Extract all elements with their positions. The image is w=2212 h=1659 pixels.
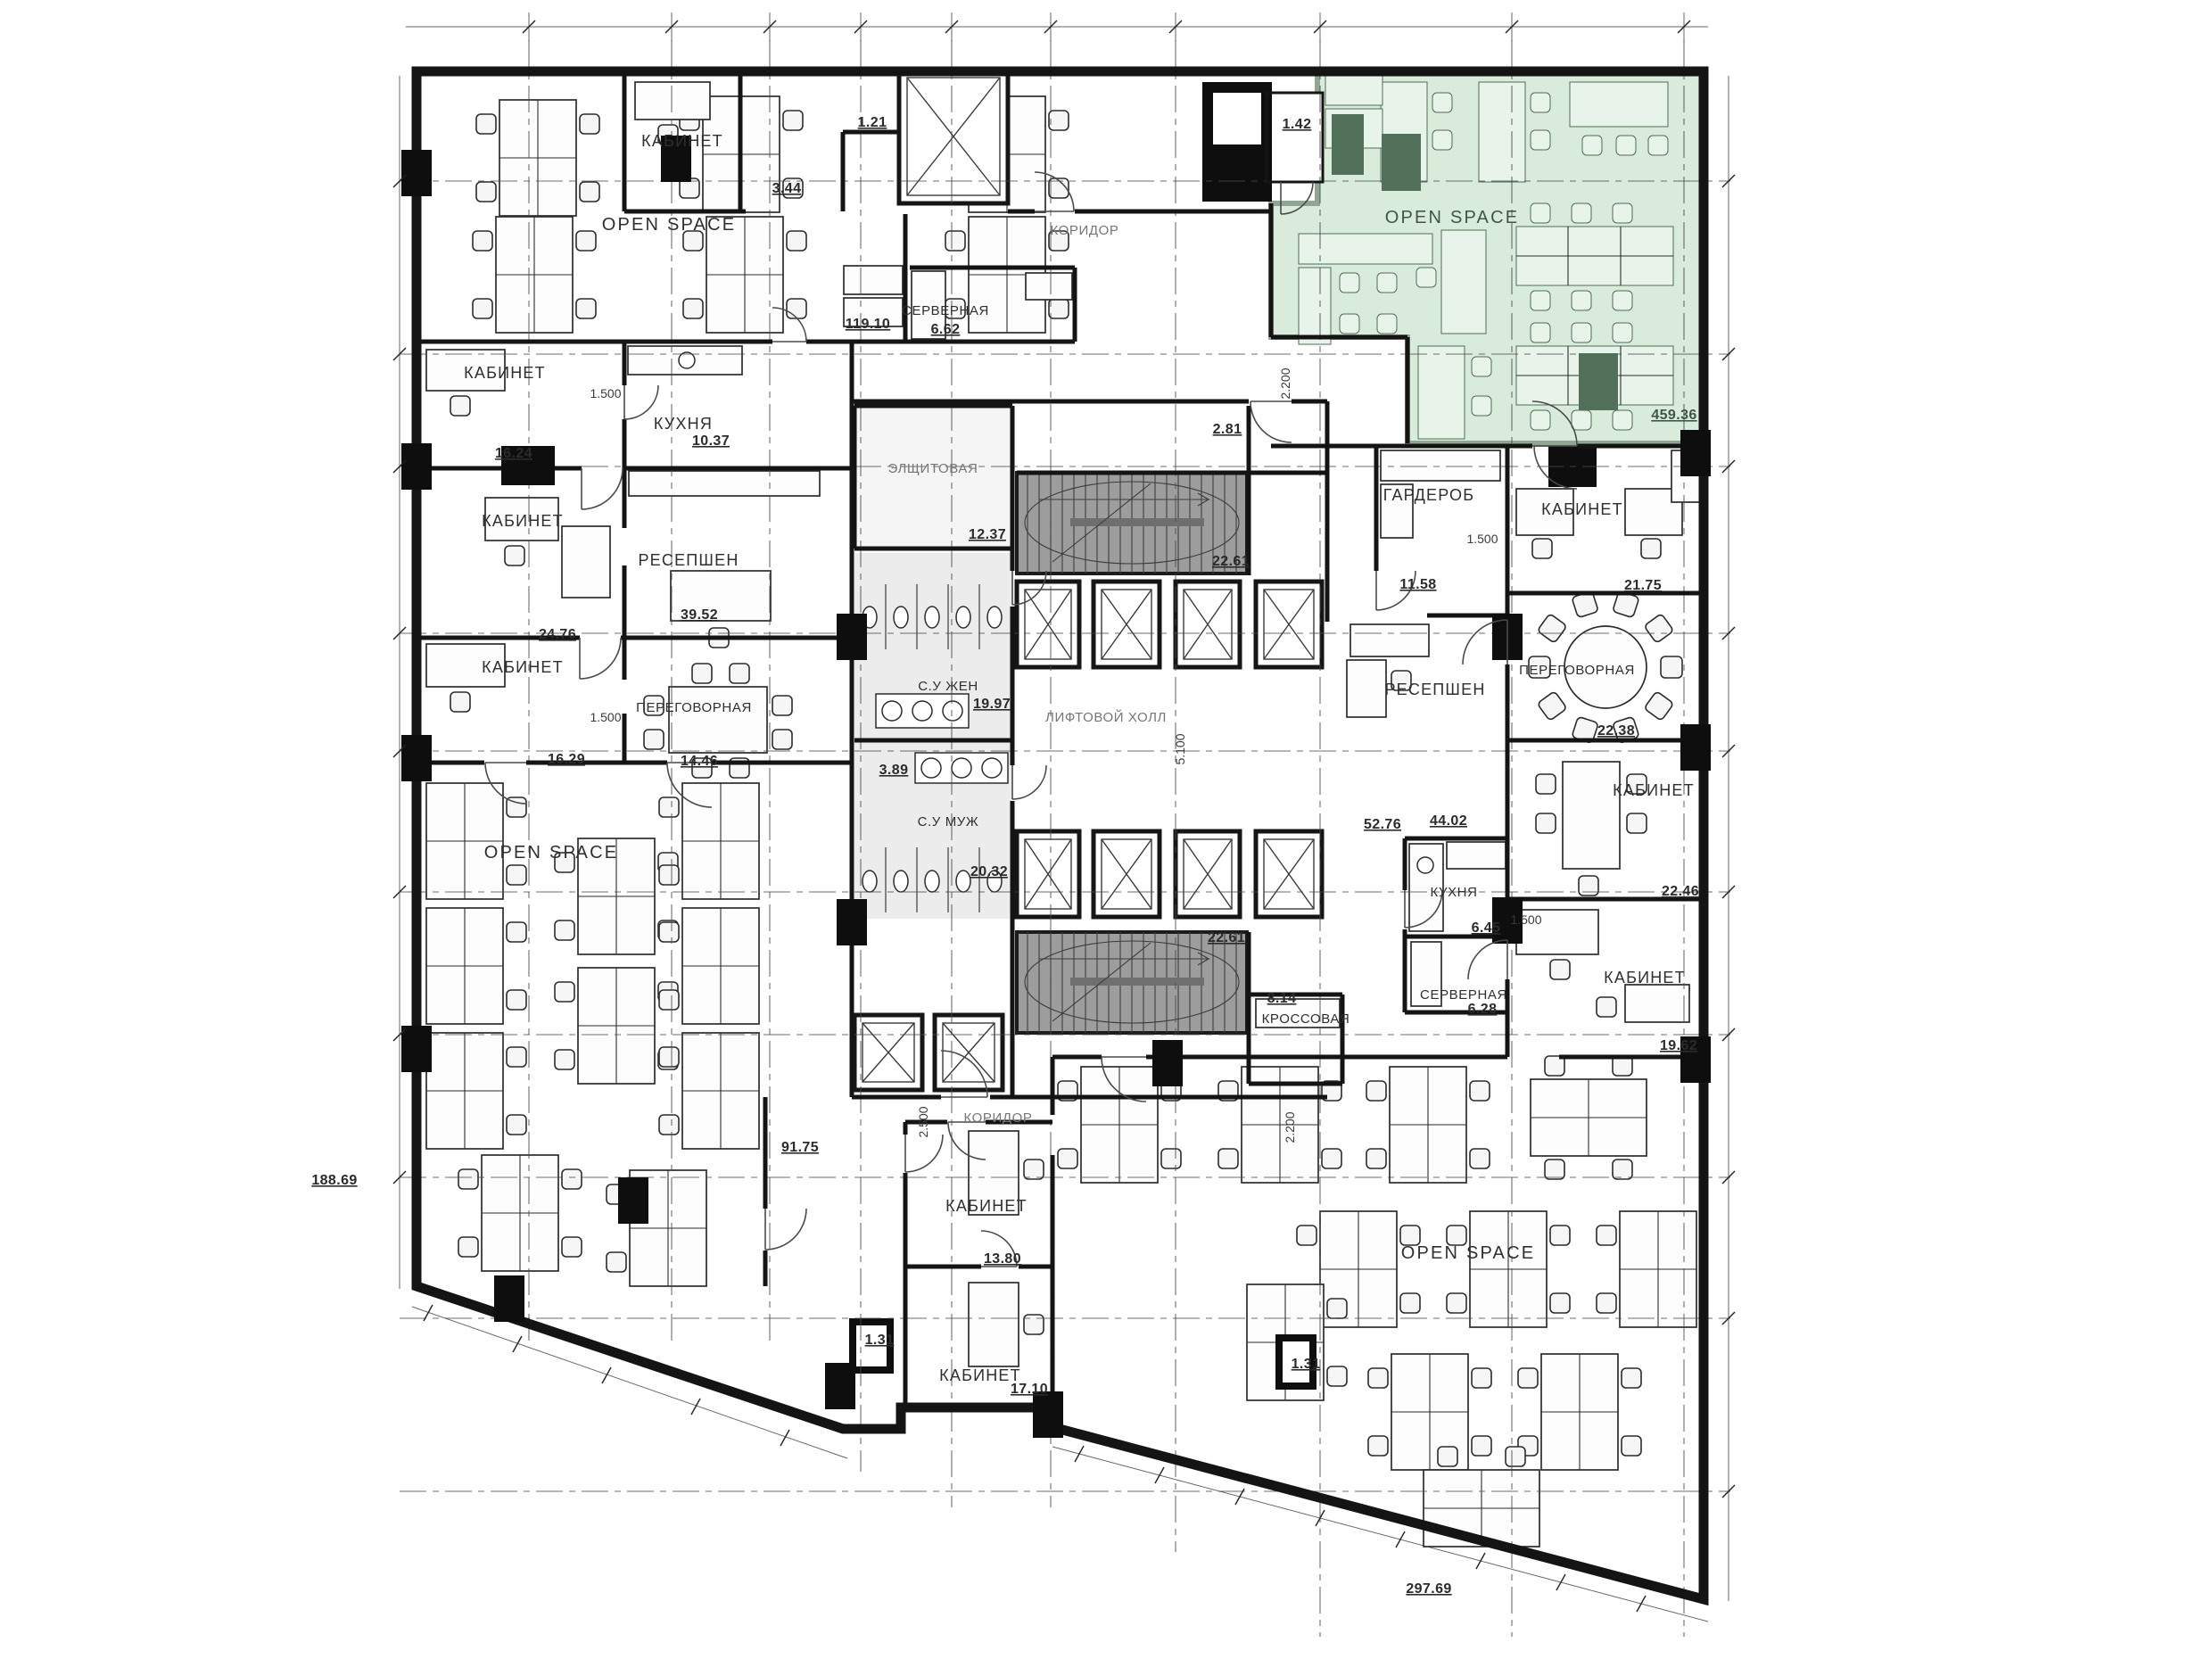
floor-plan-drawing: OPEN SPACE 119.10 СЕРВЕРНАЯ 6.62 КАБИНЕТ… [0, 0, 2212, 1659]
room-area-krossovaya: 8.14 [1267, 991, 1297, 1006]
room-label-kabinet-top: КАБИНЕТ [641, 132, 723, 150]
room-area-open-space-green: 459.36 [1651, 408, 1696, 423]
room-label-kabinet-r1: КАБИНЕТ [1541, 500, 1623, 518]
dim-2500: 2.500 [916, 1106, 930, 1137]
area-stairs-bottom: 22.61 [1208, 930, 1245, 945]
area-3-89: 3.89 [879, 763, 909, 778]
room-area-reception-right: 44.02 [1430, 813, 1467, 829]
room-label-corridor-top: КОРИДОР [1050, 223, 1118, 238]
room-label-garderob: ГАРДЕРОБ [1383, 486, 1475, 504]
room-area-reception-left: 39.52 [681, 607, 718, 623]
room-label-open-space-green: OPEN SPACE [1385, 208, 1520, 227]
room-label-server-top: СЕРВЕРНАЯ [902, 303, 989, 318]
room-area-kabinet-r1: 21.75 [1624, 578, 1662, 593]
room-area-elshitovaya: 12.37 [969, 527, 1006, 542]
room-area-kitchen-right: 6.45 [1472, 920, 1501, 936]
room-label-kabinet-l2: КАБИНЕТ [482, 512, 564, 530]
room-label-peregovornaya-right: ПЕРЕГОВОРНАЯ [1519, 663, 1635, 678]
room-area-server-top: 6.62 [931, 322, 961, 337]
room-area-kabinet-r2: 22.46 [1662, 884, 1699, 899]
area-1-31-right: 1.31 [1292, 1357, 1321, 1372]
room-area-wc-men: 20.32 [970, 864, 1008, 879]
room-label-open-space-left: OPEN SPACE [484, 843, 619, 863]
room-area-peregovornaya-right: 22.38 [1597, 723, 1635, 739]
area-1-31-left: 1.31 [865, 1333, 895, 1348]
dim-2200-b: 2.200 [1283, 1111, 1297, 1143]
room-area-kitchen-left: 10.37 [692, 433, 730, 449]
area-1-42: 1.42 [1283, 117, 1312, 132]
area-1-21: 1.21 [858, 115, 887, 130]
room-label-kabinet-b2: КАБИНЕТ [939, 1366, 1021, 1384]
room-label-corridor-bottom: КОРИДОР [963, 1110, 1032, 1126]
room-area-wc-women: 19.97 [973, 697, 1011, 712]
dim-1500-b: 1.500 [590, 710, 621, 724]
dim-5100: 5.100 [1173, 733, 1187, 764]
room-area-kabinet-l3: 16.29 [548, 752, 585, 767]
room-label-wc-men: С.У МУЖ [918, 814, 979, 829]
area-91-75: 91.75 [781, 1140, 819, 1155]
room-label-peregovornaya-left: ПЕРЕГОВОРНАЯ [636, 700, 752, 715]
room-label-krossovaya: КРОССОВАЯ [1262, 1011, 1350, 1027]
room-label-kitchen-right: КУХНЯ [1430, 885, 1477, 900]
area-stairs-top: 22.61 [1212, 554, 1250, 569]
room-area-open-space-left: 188.69 [311, 1173, 357, 1188]
room-area-open-space-top-left: 119.10 [846, 317, 890, 332]
room-label-elshitovaya: ЭЛЩИТОВАЯ [888, 461, 978, 476]
room-label-wc-women: С.У ЖЕН [918, 679, 978, 694]
room-area-kabinet-r3: 19.62 [1660, 1038, 1697, 1053]
room-label-kabinet-r2: КАБИНЕТ [1613, 781, 1695, 799]
room-area-open-space-bottom: 297.69 [1406, 1581, 1451, 1597]
dim-1500-a: 1.500 [590, 386, 621, 400]
area-2-81: 2.81 [1213, 422, 1242, 437]
room-label-reception-right: РЕСЕПШЕН [1384, 681, 1485, 698]
room-fills [854, 406, 1012, 919]
room-label-lift-hall: ЛИФТОВОЙ ХОЛЛ [1045, 709, 1167, 725]
dim-1500-d: 1.500 [1510, 912, 1541, 927]
room-label-kabinet-l1: КАБИНЕТ [464, 364, 546, 382]
room-label-kabinet-r3: КАБИНЕТ [1604, 969, 1686, 986]
room-label-kitchen-left: КУХНЯ [654, 415, 713, 433]
room-label-kabinet-l3: КАБИНЕТ [482, 658, 564, 676]
room-label-open-space-bottom: OPEN SPACE [1401, 1243, 1536, 1263]
dim-2200-a: 2.200 [1278, 367, 1292, 399]
room-area-peregovornaya-left: 14.46 [681, 754, 718, 769]
room-label-reception-left: РЕСЕПШЕН [638, 551, 739, 569]
room-area-kabinet-b1: 13.80 [984, 1251, 1021, 1267]
room-label-open-space-top-left: OPEN SPACE [602, 215, 737, 235]
room-area-kabinet-l1: 16.24 [495, 446, 532, 461]
room-area-server-right: 6.28 [1468, 1002, 1498, 1017]
area-52-76: 52.76 [1364, 817, 1401, 832]
room-area-kabinet-l2: 24.76 [539, 627, 576, 642]
room-area-garderob: 11.58 [1399, 577, 1436, 592]
area-3-44: 3.44 [772, 181, 802, 196]
room-area-kabinet-b2: 17.10 [1011, 1382, 1048, 1397]
room-label-server-right: СЕРВЕРНАЯ [1420, 987, 1507, 1003]
floor-plan-page: OPEN SPACE 119.10 СЕРВЕРНАЯ 6.62 КАБИНЕТ… [0, 0, 2212, 1659]
dim-1500-c: 1.500 [1466, 532, 1498, 546]
room-label-kabinet-b1: КАБИНЕТ [945, 1197, 1028, 1215]
